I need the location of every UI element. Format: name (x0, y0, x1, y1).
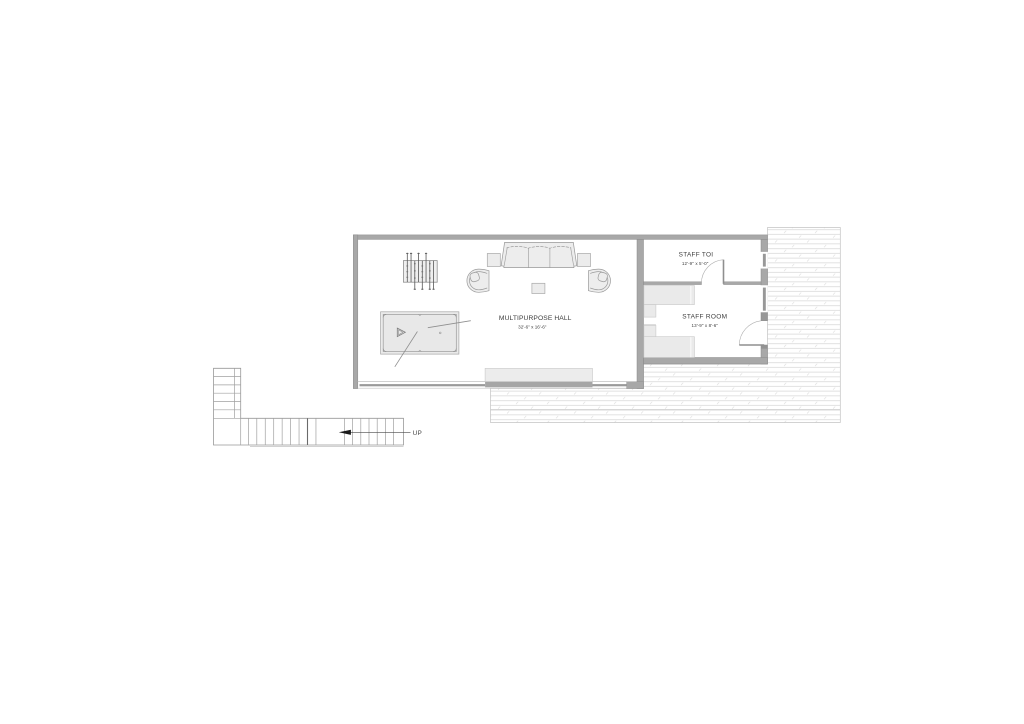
svg-text:UP: UP (413, 430, 422, 437)
svg-text:13'-9" x 8'-6": 13'-9" x 8'-6" (692, 323, 719, 328)
svg-text:STAFF TOI: STAFF TOI (679, 252, 714, 259)
svg-text:32'-6" x 16'-6": 32'-6" x 16'-6" (518, 324, 547, 329)
svg-text:STAFF ROOM: STAFF ROOM (682, 313, 727, 320)
svg-text:12'-9" x 5'-0": 12'-9" x 5'-0" (682, 261, 709, 266)
svg-text:MULTIPURPOSE HALL: MULTIPURPOSE HALL (499, 315, 572, 322)
